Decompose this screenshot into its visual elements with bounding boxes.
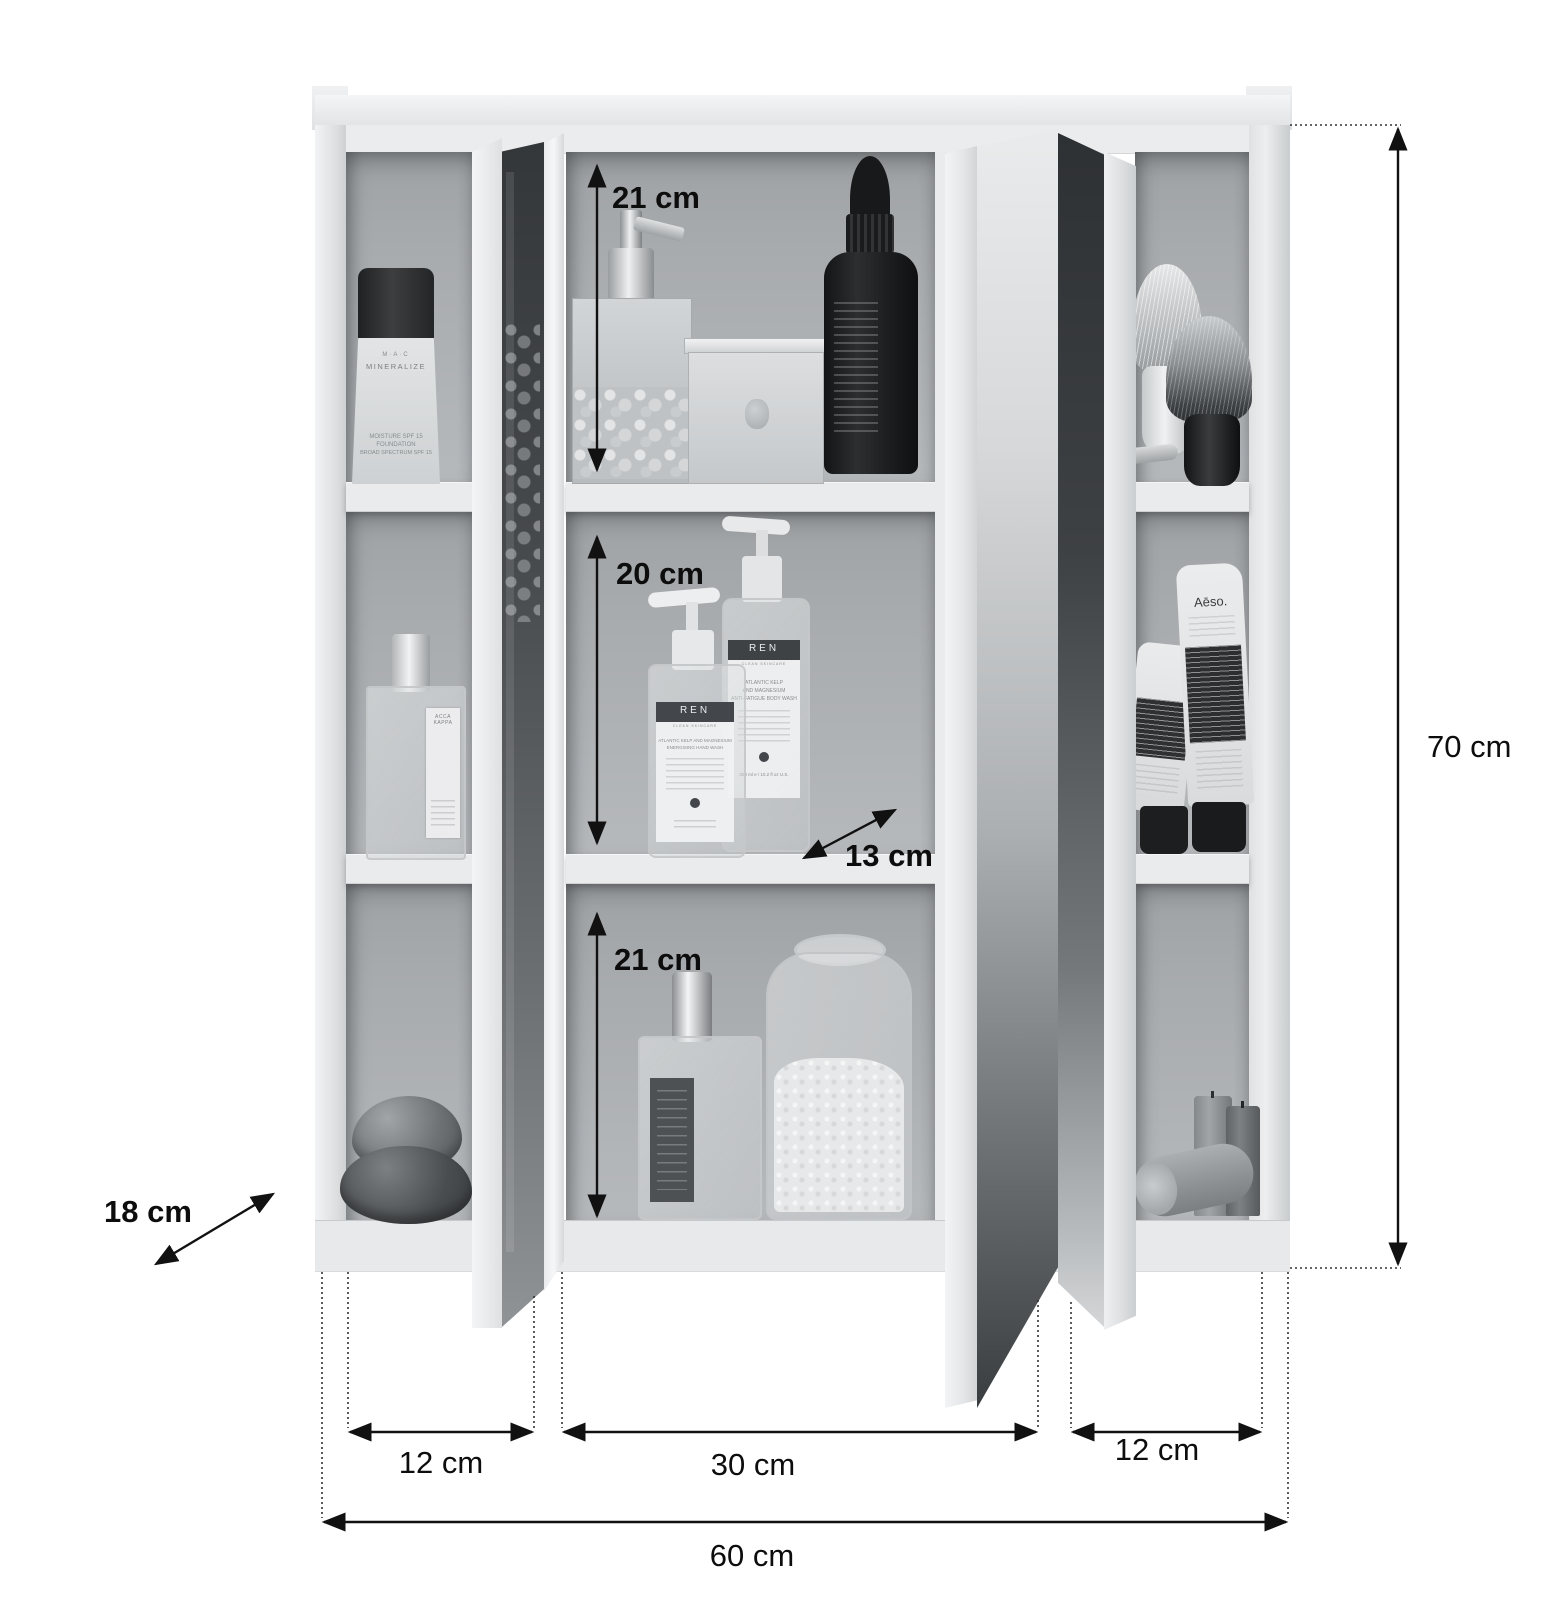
ren-body-wash-band: REN: [728, 640, 800, 660]
dim-left-compartment-width: 12 cm: [381, 1447, 501, 1478]
bath-salt-jar: [766, 952, 912, 1220]
right-shelf-divider-2: [1135, 854, 1249, 884]
ren-hand-wash-bottle: REN CLEAN SKINCARE ATLANTIC KELP AND MAG…: [648, 664, 746, 858]
cabinet-right-post: [1249, 125, 1290, 1270]
right-door-frame: [1104, 140, 1136, 1330]
center-door-mirror: [977, 128, 1058, 1408]
left-door-mirror: [502, 142, 544, 1327]
right-door-mirror: [1058, 133, 1104, 1327]
cabinet-bottom-band: [315, 1220, 1290, 1272]
acca-kappa-label: ACCA KAPPA: [426, 708, 460, 838]
dispenser-pump-collar: [608, 248, 654, 302]
right-shelf-divider-1: [1135, 482, 1249, 512]
dim-cabinet-width: 60 cm: [692, 1540, 812, 1571]
ren-desc2-text: ENERGISING HAND WASH: [656, 745, 734, 751]
left-shelf-divider-1: [346, 482, 473, 512]
mac-line-text: MINERALIZE: [352, 362, 440, 371]
fine-print-lines: [657, 1090, 687, 1190]
dispenser-pebble-texture: [573, 387, 691, 479]
acca-kappa-cap: [392, 634, 430, 692]
mac-brand-text: M·A·C: [352, 352, 440, 360]
perfume-cap: [672, 972, 712, 1042]
acca-kappa-bottle: ACCA KAPPA: [366, 686, 466, 860]
ren-hand-wash-label: REN CLEAN SKINCARE ATLANTIC KELP AND MAG…: [656, 702, 734, 842]
aesop-tube-large-cap: [1192, 802, 1246, 852]
aesop-large-band: [1185, 645, 1246, 744]
mac-foundation-bottle: M·A·C MINERALIZE MOISTURE SPF 15 FOUNDAT…: [352, 338, 440, 484]
dim-center-compartment-width: 30 cm: [693, 1449, 813, 1480]
dim-cabinet-depth: 18 cm: [104, 1196, 192, 1227]
dim-right-compartment-width: 12 cm: [1097, 1434, 1217, 1465]
soap-dispenser-body: [572, 298, 692, 484]
ren-brand-text: REN: [728, 643, 800, 656]
dim-top-shelf-height: 21 cm: [612, 182, 700, 213]
ren-hand-wash-band: REN: [656, 702, 734, 722]
dim-cabinet-height: 70 cm: [1427, 731, 1511, 762]
dropper-label-lines: [834, 302, 878, 432]
ren-brand-text: REN: [656, 705, 734, 718]
mac-foundation-cap: [358, 268, 434, 344]
dim-bottom-shelf-height: 21 cm: [614, 944, 702, 975]
box-emblem: [745, 399, 769, 429]
cabinet-top-slab: [315, 95, 1290, 127]
fine-print-lines: [1195, 749, 1243, 789]
ren-flower-icon: [690, 798, 700, 808]
product-diagram-scene: M·A·C MINERALIZE MOISTURE SPF 15 FOUNDAT…: [0, 0, 1567, 1600]
aesop-tube-small-cap: [1140, 806, 1188, 854]
aesop-tube-large: Aēso.: [1176, 562, 1255, 807]
center-door-frame: [945, 146, 977, 1408]
aesop-brand-text: Aēso.: [1177, 592, 1244, 612]
candle-wick: [1211, 1091, 1214, 1098]
dropper-bottle-body: [824, 252, 918, 474]
mac-desc3-text: BROAD SPECTRUM SPF 15: [352, 450, 440, 457]
center-shelf-divider-1: [566, 482, 935, 512]
fine-print-lines: [666, 758, 724, 790]
cabinet-top-face: [315, 125, 1290, 154]
perfume-label: [650, 1078, 694, 1202]
dim-middle-shelf-height: 20 cm: [616, 558, 704, 589]
fine-print-lines: [1188, 615, 1235, 639]
left-door-edge: [544, 133, 564, 1291]
bath-salt-fill: [774, 1058, 904, 1212]
acca-kappa-brand-text: ACCA KAPPA: [426, 714, 460, 727]
ren-desc1-text: ATLANTIC KELP AND MAGNESIUM: [656, 738, 734, 744]
ren-flower-icon: [759, 752, 769, 762]
cabinet-left-post: [315, 125, 346, 1270]
ren-sub-text: CLEAN SKINCARE: [656, 724, 734, 728]
aesop-small-band: [1131, 697, 1191, 760]
candle-wick: [1241, 1101, 1244, 1108]
dim-shelf-depth: 13 cm: [845, 840, 933, 871]
mirror-reflection-pebbles: [504, 322, 540, 622]
center-right-partition: [935, 152, 945, 1220]
perfume-bottle: [638, 1036, 762, 1220]
dropper-bottle-collar: [846, 214, 894, 254]
silver-box: [688, 352, 824, 484]
mac-desc1-text: MOISTURE SPF 15: [352, 434, 440, 442]
shaving-brush-black-handle: [1184, 414, 1240, 486]
fine-print-lines: [674, 820, 716, 828]
left-door-frame: [472, 138, 502, 1328]
mac-desc2-text: FOUNDATION: [352, 442, 440, 450]
fine-print-lines: [1131, 763, 1180, 798]
ren-body-wash-pump-cap: [742, 556, 782, 602]
fine-print-lines: [431, 800, 455, 826]
